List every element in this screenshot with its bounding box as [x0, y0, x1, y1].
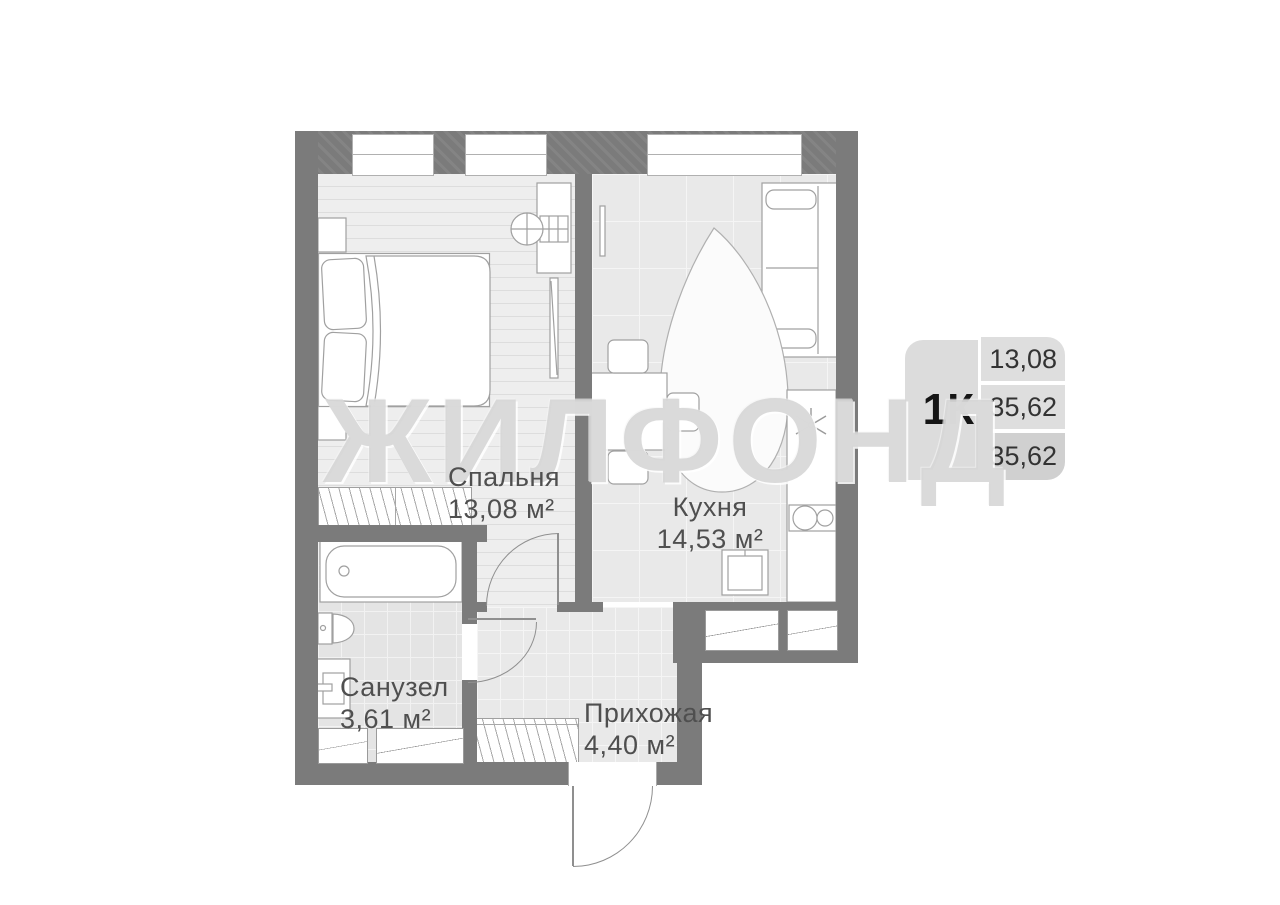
- window-frame: [353, 154, 433, 155]
- hallway-closet: [473, 718, 579, 764]
- floor-plan: ЖИЛФОНД Спальня 13,08 м² Кухня 14,53 м² …: [0, 0, 1280, 905]
- room-name: Прихожая: [584, 698, 713, 728]
- window-kitchen: [647, 134, 802, 176]
- entrance-door-leaf: [572, 786, 574, 866]
- label-bedroom: Спальня 13,08 м²: [448, 462, 560, 526]
- room-area: 4,40 м²: [584, 730, 713, 762]
- entrance-door-arc: [573, 786, 653, 867]
- room-area: 13,08 м²: [448, 494, 560, 526]
- entrance-opening: [568, 762, 657, 786]
- window-bedroom-2: [465, 134, 547, 176]
- window-frame: [466, 154, 546, 155]
- wall-bedroom-bathroom: [318, 525, 487, 542]
- wall-bathroom-right-lower: [462, 680, 477, 762]
- wall-bathroom-right-upper: [462, 542, 477, 624]
- vent-shaft: [787, 610, 838, 651]
- watermark: ЖИЛФОНД: [323, 372, 1012, 510]
- bedroom-door-leaf: [557, 533, 559, 605]
- room-name: Кухня: [673, 492, 748, 522]
- vent-shaft: [705, 610, 779, 651]
- window-frame: [648, 154, 801, 155]
- room-name: Спальня: [448, 462, 560, 492]
- label-kitchen: Кухня 14,53 м²: [645, 492, 775, 556]
- window-bedroom-1: [352, 134, 434, 176]
- closet-rail: [474, 724, 578, 725]
- bathroom-door-leaf: [468, 618, 536, 620]
- wall-left: [295, 131, 318, 785]
- room-name: Санузел: [340, 672, 449, 702]
- label-bathroom: Санузел 3,61 м²: [340, 672, 449, 736]
- wall-stub-between-doors: [557, 602, 603, 612]
- room-area: 3,61 м²: [340, 704, 449, 736]
- label-hallway: Прихожая 4,40 м²: [584, 698, 713, 762]
- room-area: 14,53 м²: [645, 524, 775, 556]
